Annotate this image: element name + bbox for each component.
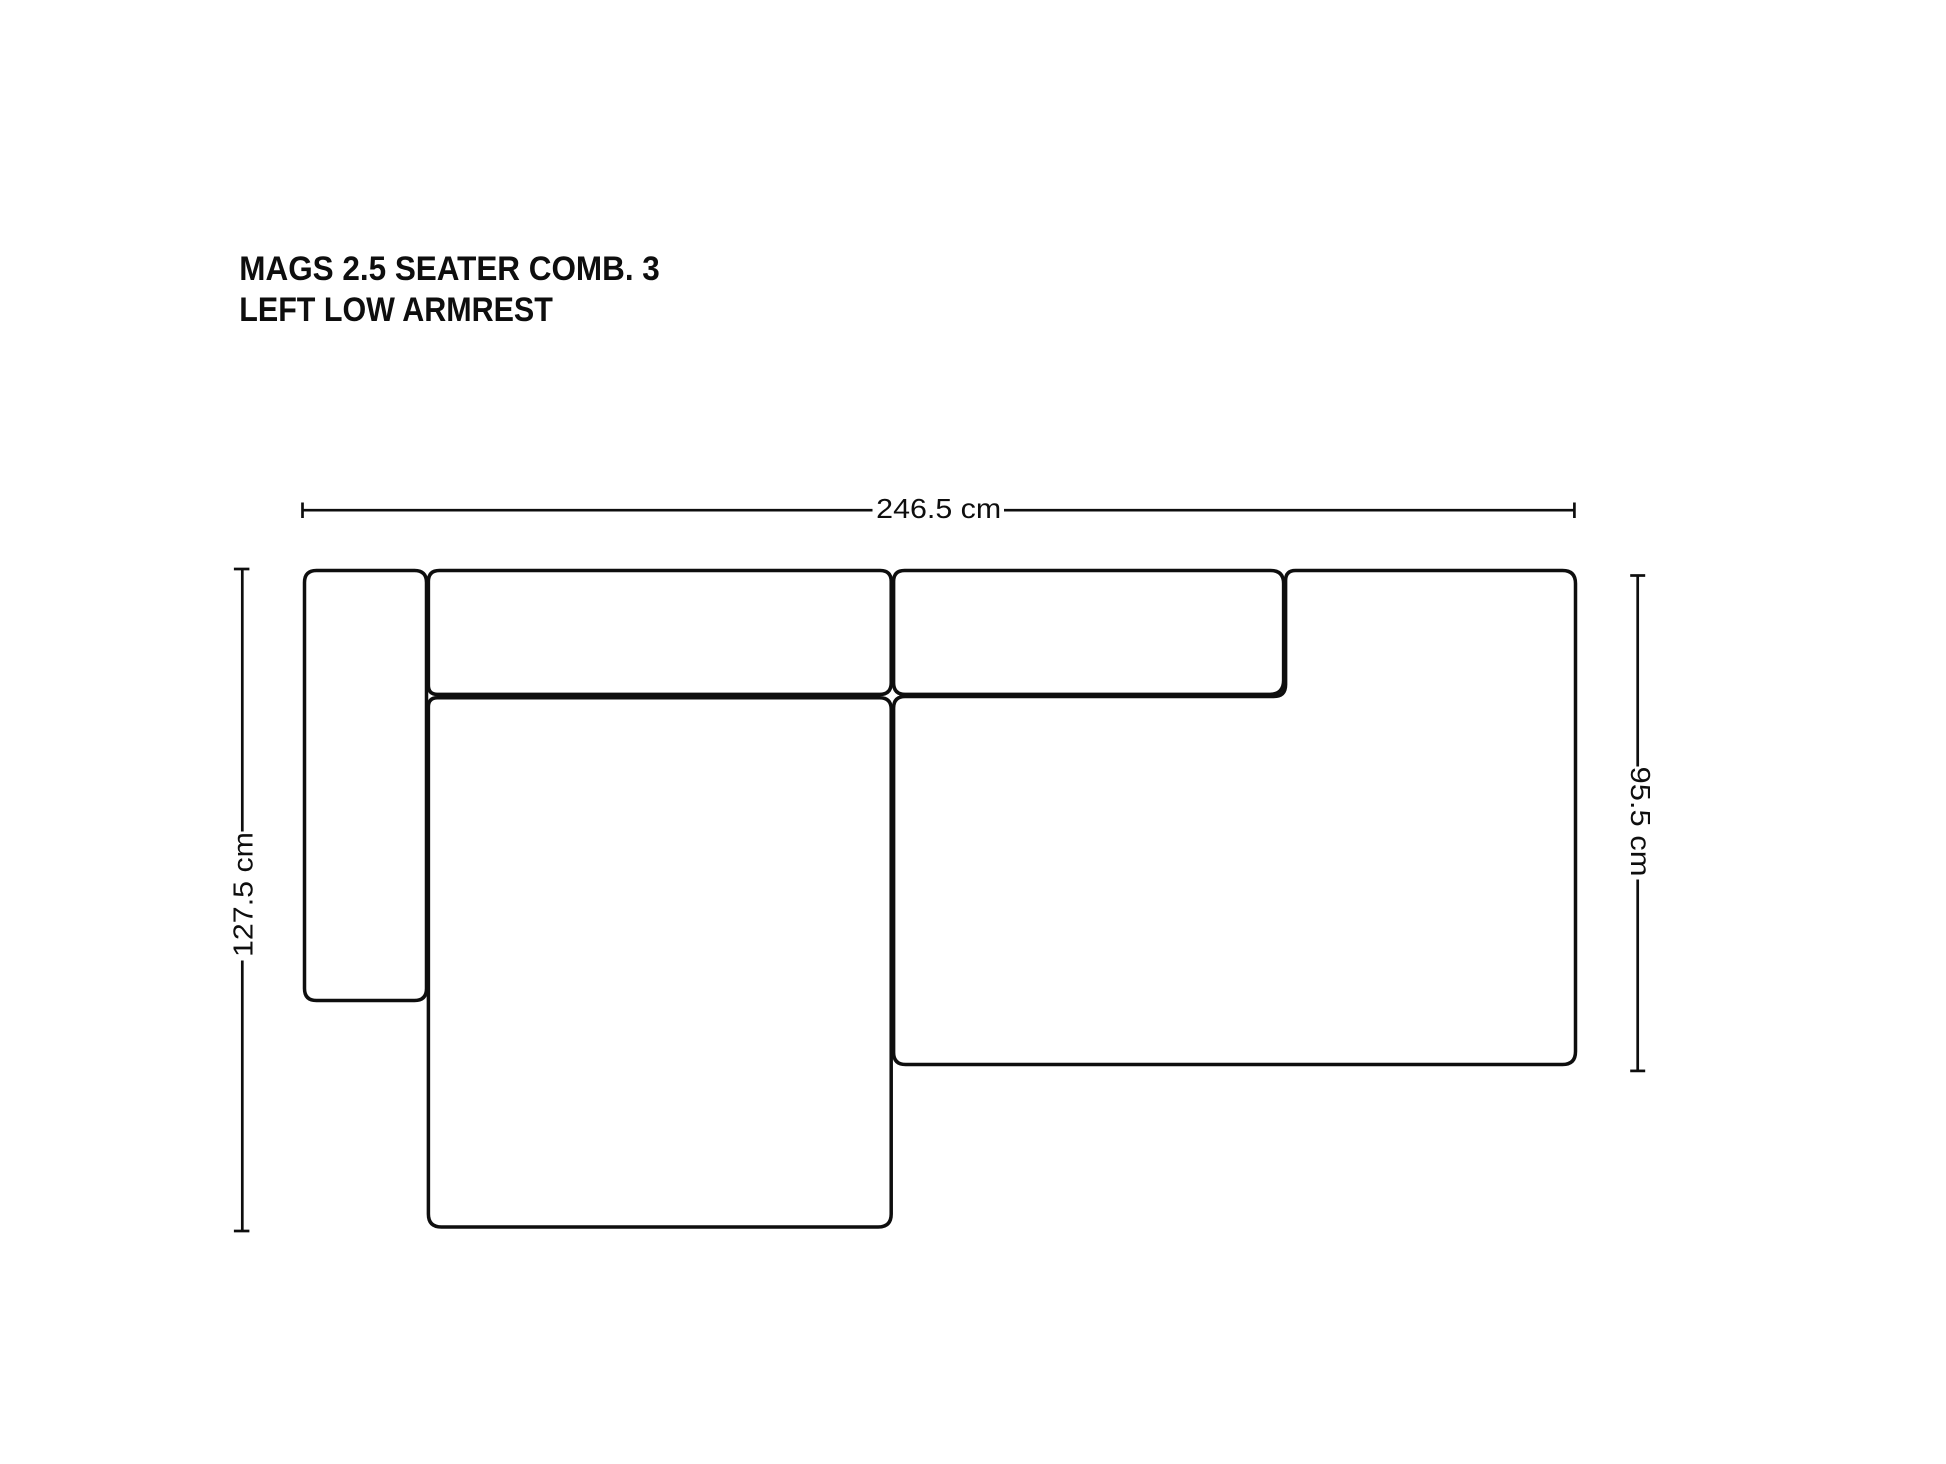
svg-text:MAGS 2.5 SEATER COMB. 3: MAGS 2.5 SEATER COMB. 3 <box>239 250 660 288</box>
svg-text:246.5 cm: 246.5 cm <box>876 493 1001 524</box>
svg-text:LEFT LOW ARMREST: LEFT LOW ARMREST <box>239 291 553 329</box>
svg-text:95.5 cm: 95.5 cm <box>1625 767 1656 877</box>
svg-text:127.5 cm: 127.5 cm <box>228 832 259 957</box>
